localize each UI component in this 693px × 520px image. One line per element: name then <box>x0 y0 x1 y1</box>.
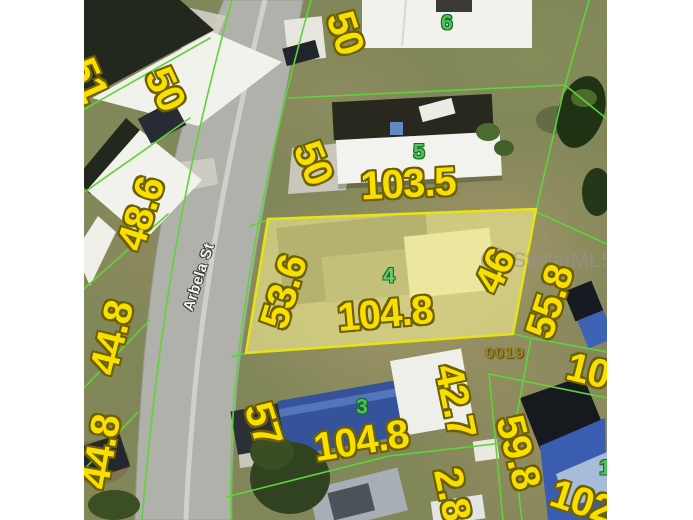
lot-number-5: 5 <box>413 142 425 163</box>
dimension-label-2-8: 2.8 <box>427 464 477 520</box>
parcel-id-label: 0019 <box>485 346 525 362</box>
dimension-label-103-5: 103.5 <box>359 162 456 207</box>
blue-bin <box>390 122 403 135</box>
lot-number-3: 3 <box>356 397 368 418</box>
tree-right-mid <box>582 168 607 216</box>
parcel-map-screenshot: StellarMLS Arbela St 51 50 50 50 48.6 44… <box>0 0 693 520</box>
bush-bottom-left <box>88 490 140 520</box>
lot-number-1: 1 <box>599 458 607 479</box>
dimension-label-10-cut: 10 <box>563 346 607 395</box>
aerial-photo: StellarMLS Arbela St 51 50 50 50 48.6 44… <box>84 0 607 520</box>
shrub-1 <box>476 123 500 141</box>
dimension-label-104-8-lot4: 104.8 <box>336 290 434 338</box>
palm-frond <box>571 89 597 107</box>
lot-number-4: 4 <box>383 266 395 287</box>
lot-number-6: 6 <box>441 13 453 34</box>
shrub-2 <box>494 140 514 156</box>
